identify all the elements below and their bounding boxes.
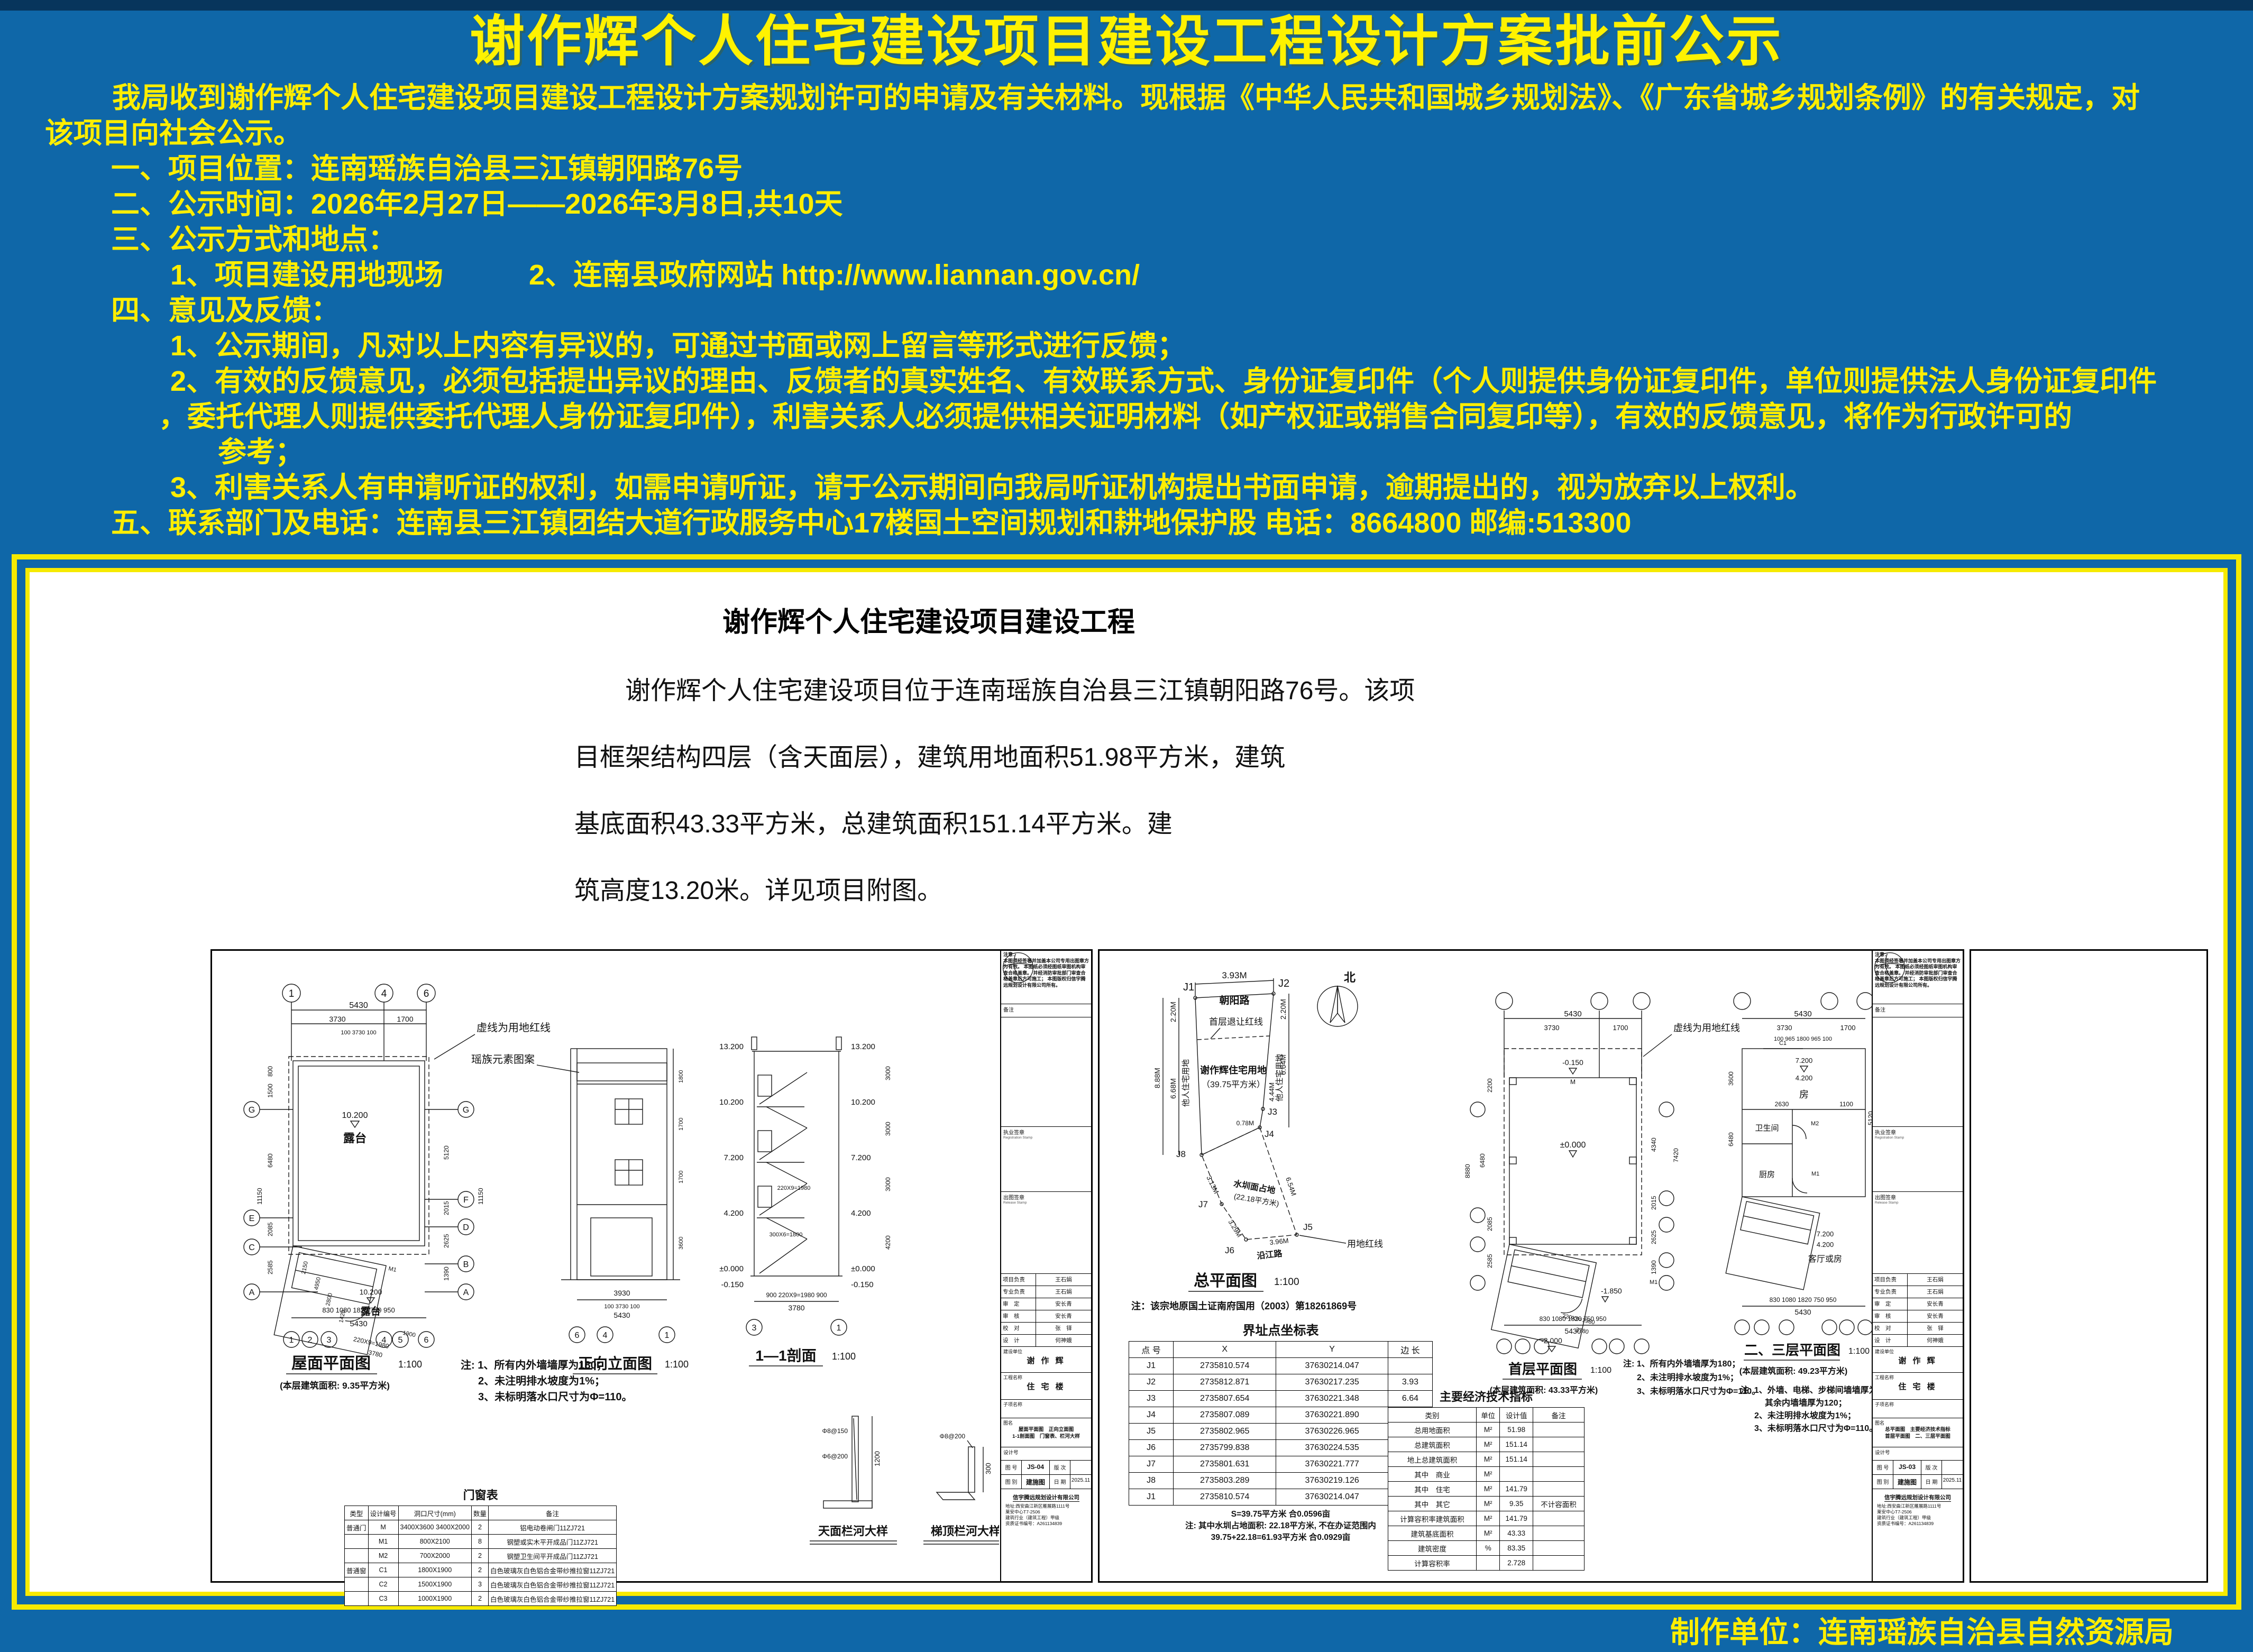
design-no-label: 设计号 (1001, 1447, 1091, 1461)
sheet-cat-row: 图 别 建施图 日 期 2025.11 (1001, 1475, 1091, 1489)
axis-label: 4 (603, 1331, 608, 1340)
notice-line-sites: 1、项目建设用地现场 2、连南县政府网站 http://www.liannan.… (0, 258, 2253, 293)
field-label: 图 别 (1001, 1475, 1022, 1489)
plan-note: 注: 1、外墙、电梯、步梯间墙墙厚为180； (1741, 1385, 1872, 1395)
table-cell: M² (1477, 1422, 1500, 1437)
axis-label: 6 (424, 1336, 429, 1345)
sheet-name-field: 图名 屋面平面图 正向立面图 1-1剖面图 门窗表、栏河大样 (1001, 1418, 1091, 1447)
sheet-number: JS-03 (1893, 1461, 1921, 1474)
door-tag: M1 (388, 1265, 397, 1273)
table-cell: M² (1477, 1526, 1500, 1541)
table-cell (345, 1577, 369, 1592)
table-cell (345, 1592, 369, 1606)
section-1-1: 220X9=1980 300X6=1800 13.200 10.200 7.20… (719, 1037, 892, 1366)
dim: 830 1080 1820 750 950 (322, 1306, 395, 1314)
project-paragraph-line: 目框架结构四层（含天面层），建筑用地面积51.98平方米，建筑 (574, 742, 1812, 773)
sheet-name: 1-1剖面图 门窗表、栏河大样 (1003, 1433, 1089, 1440)
dim: 3600 (678, 1237, 684, 1250)
summary-line: 39.75+22.18=61.93平方米 合0.0929亩 (1129, 1532, 1433, 1544)
dim: 2630 (1775, 1100, 1789, 1108)
table-cell: 37630224.535 (1276, 1440, 1388, 1456)
table-cell: 2735810.574 (1174, 1489, 1276, 1506)
roof-note: 3、未标明落水口尺寸为Φ=110。 (478, 1391, 632, 1403)
dim: 3000 (884, 1177, 892, 1191)
table-cell: 2735801.631 (1174, 1456, 1276, 1473)
door-tag: M2 (1811, 1121, 1819, 1127)
table-cell: 51.98 (1500, 1422, 1533, 1437)
axis-label: 1 (837, 1324, 841, 1333)
dim: 3.93M (1222, 970, 1247, 980)
dim: 4340 (1650, 1137, 1657, 1152)
remark-label: 备注 (1001, 1004, 1091, 1017)
site-plan-title: 总平面图 (1194, 1272, 1257, 1290)
dim: 3780 (788, 1304, 804, 1312)
sign-name: 张 铎 (1908, 1323, 1963, 1334)
company-logo (1001, 951, 1035, 985)
dim: 5430 (349, 1001, 368, 1010)
table-cell: 其中 商业 (1388, 1467, 1477, 1482)
dim: 800 (267, 1066, 274, 1077)
field-label: 工程名称 (1003, 1374, 1089, 1381)
sign-name: 安长青 (1036, 1310, 1091, 1322)
company-name: 信宇腾远规划设计有限公司 (1884, 1493, 1951, 1502)
roof-plan-scale: 1:100 (398, 1359, 422, 1370)
summary-line: S=39.75平方米 合0.0596亩 (1129, 1509, 1433, 1520)
producer-credit: 制作单位：连南瑶族自治县自然资源局 (0, 1609, 2174, 1651)
company-address: 地址:西安曲江新区雁展路1111号 莱安中心T7-2506 建筑行业（建筑工程）… (1001, 1502, 1091, 1527)
level: 4.200 (851, 1209, 871, 1218)
empty-sheet-frame (1970, 949, 2208, 1583)
sheet-no-row: 图 号 JS-04 版 次 (1001, 1461, 1091, 1475)
axis-label: 1 (289, 1336, 294, 1345)
address-line: 建筑行业（建筑工程）甲级 (1877, 1515, 1931, 1520)
field-label: 工程名称 (1875, 1374, 1961, 1381)
economic-table: 类别单位设计值备注总用地面积M²51.98总建筑面积M²151.14地上总建筑面… (1388, 1407, 1585, 1571)
table-cell: 37630214.047 (1276, 1489, 1388, 1506)
field-label: 图名 (1003, 1419, 1089, 1426)
stamp-label-en: Release Stamp (1875, 1201, 1961, 1205)
address-line: 资质证书编号：A261134839 (1877, 1521, 1934, 1526)
level: 7.200 (851, 1153, 871, 1162)
notice-body: 我局收到谢作辉个人住宅建设项目建设工程设计方案规划许可的申请及有关材料。现根据《… (0, 80, 2253, 541)
level: 10.200 (360, 1288, 382, 1296)
table-cell: 普通门 (345, 1520, 369, 1535)
dim: 6480 (267, 1153, 274, 1168)
table-cell: 总建筑面积 (1388, 1437, 1477, 1452)
stamp-label-en: Registration Stamp (1003, 1136, 1089, 1140)
table-cell: 9.35 (1500, 1497, 1533, 1511)
table-cell: 37630221.348 (1276, 1391, 1388, 1407)
sign-label: 校 对 (1001, 1323, 1036, 1334)
drawing-sheet-js04: 1 4 6 5430 3730 1700 100 3730 100 虚线为用地红… (210, 949, 1093, 1583)
release-stamp-area: 出图签章 Release Stamp (1001, 1192, 1091, 1274)
axis-label: 2 (308, 1336, 313, 1345)
parcel-area-label: （39.75平方米） (1202, 1080, 1265, 1089)
axis-label: A (249, 1288, 255, 1297)
notice-line: 参考； (0, 435, 2253, 470)
table-cell: J1 (1129, 1489, 1174, 1506)
scan-edge-strip (0, 0, 2253, 11)
project-paragraph-line: 谢作辉个人住宅建设项目位于连南瑶族自治县三江镇朝阳路76号。该项 (574, 676, 1863, 706)
table-cell: 2735807.654 (1174, 1391, 1276, 1407)
level: -0.150 (851, 1280, 874, 1289)
table-cell: 白色玻璃灰白色铝合金带纱推拉窗11ZJ721 (488, 1577, 616, 1592)
axis-label: 4 (382, 1336, 387, 1345)
drawing-sheet-js03: 北 J1 J2 3.93M 朝阳路 首层退让红线 谢作辉住宅用地 （39.75平… (1098, 949, 1964, 1583)
level: 7.200 (1796, 1057, 1813, 1064)
table-cell: 计算容积率建筑面积 (1388, 1511, 1477, 1526)
axis-label: G (249, 1106, 255, 1115)
table-cell: 建筑基底面积 (1388, 1526, 1477, 1541)
table-cell: J3 (1129, 1391, 1174, 1407)
level: 13.200 (851, 1042, 875, 1051)
title-block: 注意： 本图须经签署并加盖本公司专用出图章方为有效。 本图纸必须经图纸审图机构审… (1872, 951, 1963, 1581)
sign-row: 专业负责王石娟 (1001, 1286, 1091, 1298)
dim: 3730 (1544, 1024, 1560, 1032)
level: 7.200 (723, 1153, 744, 1162)
stamp-label-en: Release Stamp (1003, 1201, 1089, 1205)
table-cell (1388, 1358, 1432, 1374)
design-firm-block: 信宇腾远规划设计有限公司 地址:西安曲江新区雁展路1111号 莱安中心T7-25… (1001, 1489, 1091, 1581)
dim: 1500 (267, 1084, 274, 1098)
detail-title: 梯顶栏河大样 (931, 1525, 999, 1538)
dim: 900 220X9=1980 900 (766, 1291, 827, 1299)
table-header-cell: 点 号 (1129, 1342, 1174, 1358)
floor-outline (1509, 1078, 1636, 1244)
table-cell: J4 (1129, 1407, 1174, 1424)
notice-line-contact: 五、联系部门及电话：连南县三江镇团结大道行政服务中心17楼国土空间规划和耕地保护… (0, 506, 2253, 541)
north-label: 北 (1344, 971, 1356, 984)
field-label: 建设单位 (1003, 1348, 1089, 1355)
room-label: 客厅或房 (1808, 1254, 1842, 1264)
dim: 1700 (1613, 1024, 1628, 1032)
table-cell: M2 (368, 1549, 398, 1563)
dim: 300 (984, 1463, 992, 1474)
field-label: 图 号 (1001, 1461, 1022, 1474)
redline-label: 虚线为用地红线 (477, 1022, 551, 1034)
table-cell (1533, 1556, 1585, 1571)
sign-name: 安长青 (1908, 1298, 1963, 1310)
dim: 3930 (613, 1289, 630, 1297)
release-stamp-area: 出图签章 Release Stamp (1873, 1192, 1963, 1274)
sheet-number: JS-04 (1022, 1461, 1050, 1474)
table-cell: M² (1477, 1482, 1500, 1497)
redline-label: 虚线为用地红线 (1673, 1023, 1740, 1033)
notice-header: 谢作辉个人住宅建设项目建设工程设计方案批前公示 我局收到谢作辉个人住宅建设项目建… (0, 11, 2253, 541)
level: -2.000 (1541, 1336, 1562, 1345)
notice-line: 我局收到谢作辉个人住宅建设项目建设工程设计方案规划许可的申请及有关材料。现根据《… (0, 80, 2253, 116)
table-cell: 37630221.890 (1276, 1407, 1388, 1424)
table-cell: 43.33 (1500, 1526, 1533, 1541)
dim: 3000 (884, 1122, 892, 1136)
dim: 1100 (1839, 1100, 1853, 1108)
sign-row: 项目负责王石娟 (1001, 1274, 1091, 1286)
table-cell: 其中 其它 (1388, 1497, 1477, 1511)
field-label: 子项名称 (1003, 1401, 1089, 1408)
boundary-point: J5 (1303, 1222, 1313, 1232)
notice-title: 谢作辉个人住宅建设项目建设工程设计方案批前公示 (0, 11, 2253, 73)
address-line: 地址:西安曲江新区雁展路1111号 (1877, 1503, 1941, 1509)
sign-row: 审 定安长青 (1873, 1298, 1963, 1310)
dim: 2085 (1486, 1217, 1494, 1231)
dim: 100 3730 100 (604, 1304, 639, 1310)
stamp-label: 出图签章 (1875, 1195, 1896, 1201)
sign-label: 审 核 (1001, 1310, 1036, 1322)
table-cell: 8 (471, 1535, 488, 1549)
table-cell (1533, 1526, 1585, 1541)
level: 4.200 (1817, 1241, 1834, 1249)
sign-row: 审 核安长青 (1001, 1310, 1091, 1323)
sign-name: 王石娟 (1908, 1286, 1963, 1298)
field-label: 版 次 (1921, 1461, 1942, 1474)
sign-label: 项目负责 (1001, 1274, 1036, 1286)
table-cell: 计算容积率 (1388, 1556, 1477, 1571)
table-cell (1533, 1422, 1585, 1437)
table-cell (1533, 1482, 1585, 1497)
notice-panel-frame: 谢作辉个人住宅建设项目建设工程 谢作辉个人住宅建设项目位于连南瑶族自治县三江镇朝… (12, 554, 2241, 1610)
notice-panel: 谢作辉个人住宅建设项目建设工程 谢作辉个人住宅建设项目位于连南瑶族自治县三江镇朝… (25, 568, 2228, 1596)
dim: 2015 (1650, 1196, 1657, 1210)
owner-name: 谢 作 辉 (1003, 1355, 1089, 1366)
table-cell (1533, 1467, 1585, 1482)
dim: 0.78M (1237, 1119, 1254, 1127)
sign-name: 王石娟 (1036, 1274, 1091, 1286)
stamp-label: 执业签章 (1875, 1130, 1896, 1136)
table-cell: M² (1477, 1452, 1500, 1467)
sheet-date: 2025.11 (1942, 1475, 1963, 1489)
dim: 6.64M (1279, 1054, 1287, 1075)
dim: 6.68M (1169, 1078, 1177, 1099)
sign-row: 审 定安长青 (1001, 1298, 1091, 1310)
notice-line: 2、有效的反馈意见，必须包括提出异议的理由、反馈者的真实姓名、有效联系方式、身份… (0, 364, 2253, 399)
stamp-label-en: Registration Stamp (1875, 1136, 1961, 1140)
level: 10.200 (851, 1098, 875, 1107)
boundary-point: J6 (1225, 1245, 1234, 1255)
notice-line: ，委托代理人则提供委托代理人身份证复印件），利害关系人必须提供相关证明材料（如产… (0, 399, 2253, 435)
table-cell: 1500X1900 (398, 1577, 471, 1592)
door-tag: M1 (1650, 1279, 1657, 1286)
table-cell: 37630221.777 (1276, 1456, 1388, 1473)
sheet-no-row: 图 号 JS-03 版 次 (1873, 1461, 1963, 1475)
dim: 2.20M (1279, 999, 1287, 1020)
axis-label: 4 (381, 988, 387, 999)
stamp-label: 执业签章 (1003, 1130, 1024, 1136)
dim: 1700 (678, 1118, 684, 1131)
economic-indicator-block: 主要经济技术指标 类别单位设计值备注总用地面积M²51.98总建筑面积M²151… (1388, 1388, 1585, 1571)
table-header-cell: X (1174, 1342, 1276, 1358)
field-label: 图 号 (1873, 1461, 1893, 1474)
room-label: 卫生间 (1755, 1124, 1779, 1133)
design-firm-block: 信宇腾远规划设计有限公司 地址:西安曲江新区雁展路1111号 莱安中心T7-25… (1873, 1489, 1963, 1581)
table-cell: 白色玻璃灰白色铝合金带纱推拉窗11ZJ721 (488, 1563, 616, 1577)
dim: 11150 (477, 1188, 484, 1205)
table-cell: 铝电动卷闸门11ZJ721 (488, 1520, 616, 1535)
table-cell: 2 (471, 1563, 488, 1577)
table-cell: 2 (471, 1592, 488, 1606)
field-label: 版 次 (1050, 1461, 1070, 1474)
boundary-point: J8 (1176, 1149, 1186, 1159)
section-levels-left: 13.200 10.200 7.200 4.200 ±0.000 -0.150 (719, 1042, 744, 1289)
coordinate-table-title: 界址点坐标表 (1129, 1320, 1433, 1338)
registration-stamp-area: 执业签章 Registration Stamp (1873, 1127, 1963, 1192)
parapet-details: 1200 Φ8@150 Φ6@200 天面栏河大样 Φ8@200 300 梯顶栏… (810, 1416, 999, 1544)
dim: 11150 (256, 1188, 263, 1205)
subitem-field: 子项名称 (1873, 1400, 1963, 1418)
table-header-cell: 设计值 (1500, 1408, 1533, 1422)
table-header-cell: 设计编号 (368, 1506, 398, 1520)
dim: 1390 (1650, 1260, 1657, 1274)
table-cell: 2735807.089 (1174, 1407, 1276, 1424)
boundary-point: J1 (1183, 981, 1194, 993)
sign-name: 王石娟 (1036, 1286, 1091, 1298)
dim: 5120 (443, 1145, 450, 1160)
door-window-table: 类型设计编号洞口尺寸(mm)数量备注普通门M3400X3600 3400X200… (344, 1506, 617, 1606)
dim: 5430 (1564, 1327, 1581, 1335)
section-title: 1—1剖面 (755, 1347, 816, 1364)
door-tag: M1 (1811, 1171, 1819, 1177)
door-window-schedule: 门窗表 类型设计编号洞口尺寸(mm)数量备注普通门M3400X3600 3400… (344, 1486, 617, 1606)
yao-pattern-label: 瑶族元素图案 (471, 1053, 535, 1066)
notice-line: 3、利害关系人有申请听证的权利，如需申请听证，请于公示期间向我局听证机构提出书面… (0, 470, 2253, 506)
title-block-blank (1873, 1017, 1963, 1127)
table-header-cell: 洞口尺寸(mm) (398, 1506, 471, 1520)
field-label: 图名 (1875, 1419, 1961, 1426)
axis-label: G (463, 1106, 469, 1115)
axis-label: 3 (752, 1324, 757, 1333)
project-title: 谢作辉个人住宅建设项目建设工程 (30, 600, 1828, 639)
dim: 2625 (443, 1234, 450, 1248)
plan-note: 2、未注明排水坡度为1%； (1637, 1372, 1738, 1382)
sign-name: 何神娥 (1036, 1335, 1091, 1346)
owner-field: 建设单位谢 作 辉 (1001, 1347, 1091, 1373)
dim: 1700 (1840, 1024, 1856, 1032)
parcel-owner-label: 谢作辉住宅用地 (1200, 1064, 1267, 1076)
level: 4.200 (1796, 1074, 1813, 1082)
dim: 4950 (313, 1277, 322, 1290)
level: ±0.000 (1560, 1141, 1586, 1150)
design-no-label: 设计号 (1873, 1447, 1963, 1461)
sheet-name: 总平面图 主要经济技术指标 (1875, 1426, 1961, 1433)
table-cell: J8 (1129, 1473, 1174, 1489)
table-cell: 1800X1900 (398, 1563, 471, 1577)
section-levels-right: 13.200 10.200 7.200 4.200 ±0.000 -0.150 (851, 1042, 875, 1289)
axis-label: 3 (327, 1336, 332, 1345)
door-window-schedule-title: 门窗表 (344, 1486, 617, 1503)
dim: 2085 (267, 1222, 274, 1236)
dim: 830 1080 1820 750 950 (1770, 1296, 1837, 1304)
table-cell: M (368, 1520, 398, 1535)
table-cell: J1 (1129, 1358, 1174, 1374)
table-cell: 3400X3600 3400X2000 (398, 1520, 471, 1535)
table-cell: 3 (471, 1577, 488, 1592)
table-cell: M² (1477, 1437, 1500, 1452)
boundary-point: J2 (1278, 978, 1289, 989)
boundary-coordinate-block: 界址点坐标表 点 号XY边 长J12735810.57437630214.047… (1129, 1320, 1433, 1544)
floor23-title: 二、三层平面图 (1744, 1342, 1840, 1358)
dim: 4200 (884, 1235, 892, 1250)
plan-note: 2、未注明排水坡度为1%； (1754, 1410, 1856, 1420)
level: -1.850 (1601, 1287, 1622, 1295)
table-cell: 2735812.871 (1174, 1374, 1276, 1391)
dim: 3.13M (1205, 1174, 1220, 1195)
table-cell: 37630226.965 (1276, 1424, 1388, 1440)
table-cell: % (1477, 1541, 1500, 1556)
redline-label: 用地红线 (1347, 1239, 1383, 1249)
address-line: 莱安中心T7-2506 (1877, 1509, 1912, 1515)
table-cell (1477, 1556, 1500, 1571)
dim: 3.29M (1226, 1218, 1243, 1239)
title-block: 注意： 本图须经签署并加盖本公司专用出图章方为有效。 本图纸必须经图纸审图机构审… (1000, 951, 1091, 1581)
roof-plan: 1 4 6 5430 3730 1700 100 3730 100 虚线为用地红… (244, 984, 632, 1403)
sign-name: 何神娥 (1908, 1335, 1963, 1346)
neighbor-label: 他人住宅用地 (1182, 1059, 1190, 1107)
company-address: 地址:西安曲江新区雁展路1111号 莱安中心T7-2506 建筑行业（建筑工程）… (1873, 1502, 1963, 1527)
table-cell: 建筑密度 (1388, 1541, 1477, 1556)
level: 10.200 (719, 1098, 744, 1107)
dim: 3600 (1727, 1071, 1735, 1086)
boundary-point: J7 (1198, 1199, 1208, 1209)
coordinate-summary: S=39.75平方米 合0.0596亩 注: 其中水圳占地面积: 22.18平方… (1129, 1509, 1433, 1544)
dim: 1700 (678, 1171, 684, 1183)
sheet-name: 屋面平面图 正向立面图 (1003, 1426, 1089, 1433)
elevation-scale: 1:100 (665, 1359, 689, 1370)
table-cell: 钢塑或实木平开成品门11ZJ721 (488, 1535, 616, 1549)
roof-plan-area: (本层建筑面积: 9.35平方米) (280, 1380, 390, 1391)
site-plan: 北 J1 J2 3.93M 朝阳路 首层退让红线 谢作辉住宅用地 （39.75平… (1131, 970, 1383, 1311)
table-cell: C1 (368, 1563, 398, 1577)
notice-line-period: 二、公示时间：2026年2月27日——2026年3月8日,共10天 (0, 187, 2253, 222)
dim: 3730 (329, 1015, 345, 1023)
sign-label: 设 计 (1001, 1335, 1036, 1346)
sign-row: 专业负责王石娟 (1873, 1286, 1963, 1298)
sign-row: 审 核安长青 (1873, 1310, 1963, 1323)
axis-label: 6 (424, 988, 429, 999)
room-label: 房 (1799, 1089, 1809, 1100)
sign-label: 审 核 (1873, 1310, 1908, 1322)
table-cell: 总用地面积 (1388, 1422, 1477, 1437)
axis-label: E (249, 1214, 255, 1223)
sheet-cat-row: 图 别 建施图 日 期 2025.11 (1873, 1475, 1963, 1489)
version-value (1070, 1461, 1091, 1474)
subitem-field: 子项名称 (1001, 1400, 1091, 1418)
setback-label: 首层退让红线 (1209, 1017, 1263, 1027)
dim: 8.88M (1153, 1068, 1161, 1088)
stamp-label: 出图签章 (1003, 1195, 1024, 1201)
table-cell: 2 (471, 1549, 488, 1563)
level: 10.200 (342, 1111, 368, 1120)
table-cell: 141.79 (1500, 1482, 1533, 1497)
axis-label: D (463, 1223, 469, 1232)
dim: 1800 (678, 1070, 684, 1083)
level: -0.150 (1562, 1058, 1583, 1067)
table-cell (1500, 1467, 1533, 1482)
coordinate-table: 点 号XY边 长J12735810.57437630214.047J227358… (1129, 1341, 1433, 1506)
dim: 300X6=1800 (770, 1232, 803, 1238)
table-cell (345, 1535, 369, 1549)
axis-label: 1 (665, 1331, 670, 1340)
company-name: 信宇腾远规划设计有限公司 (1013, 1493, 1079, 1502)
site-plan-note: 注：该宗地原国土证南府国用（2003）第18261869号 (1131, 1300, 1357, 1311)
sign-label: 专业负责 (1873, 1286, 1908, 1298)
sign-row: 校 对张 铎 (1001, 1323, 1091, 1335)
table-header-cell: 类别 (1388, 1408, 1477, 1422)
stair-flights (759, 1072, 807, 1273)
table-header-cell: 类型 (345, 1506, 369, 1520)
axis-label: C (249, 1243, 255, 1252)
field-label: 子项名称 (1875, 1401, 1961, 1408)
table-cell: 2735810.574 (1174, 1358, 1276, 1374)
sheet-name-field: 图名 总平面图 主要经济技术指标 首层平面图 二、三层平面图 (1873, 1418, 1963, 1447)
